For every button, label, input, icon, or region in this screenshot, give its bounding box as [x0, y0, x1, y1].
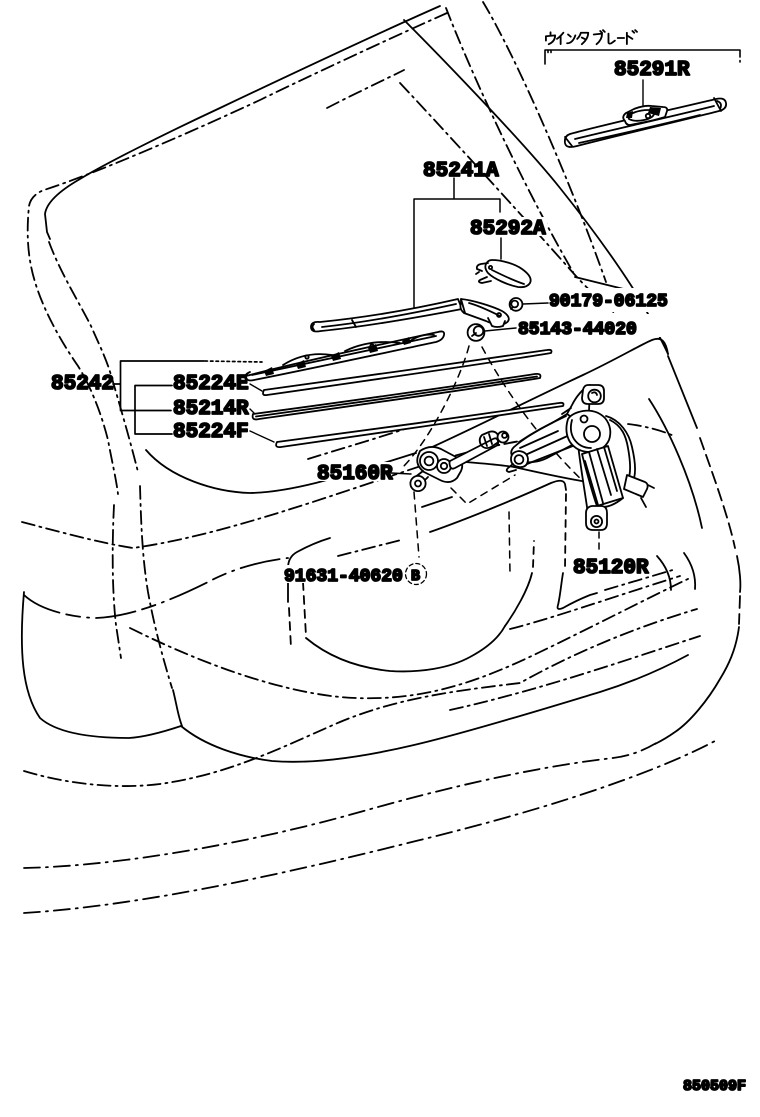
- svg-text:85160R: 85160R: [317, 463, 393, 486]
- svg-text:850509F: 850509F: [683, 1078, 746, 1095]
- svg-text:90179-06125: 90179-06125: [549, 292, 668, 312]
- svg-text:85242: 85242: [51, 373, 114, 396]
- svg-text:85292A: 85292A: [470, 218, 546, 241]
- svg-text:85241A: 85241A: [423, 160, 499, 183]
- svg-text:85120R: 85120R: [573, 557, 649, 580]
- svg-text:B: B: [411, 568, 420, 585]
- svg-text:85143-44020: 85143-44020: [518, 320, 637, 340]
- svg-text:85214R: 85214R: [173, 398, 249, 421]
- svg-text:85291R: 85291R: [614, 59, 690, 82]
- svg-text:85224E: 85224E: [173, 373, 249, 396]
- svg-text:85224F: 85224F: [173, 421, 249, 444]
- svg-text:91631-40620: 91631-40620: [284, 567, 403, 587]
